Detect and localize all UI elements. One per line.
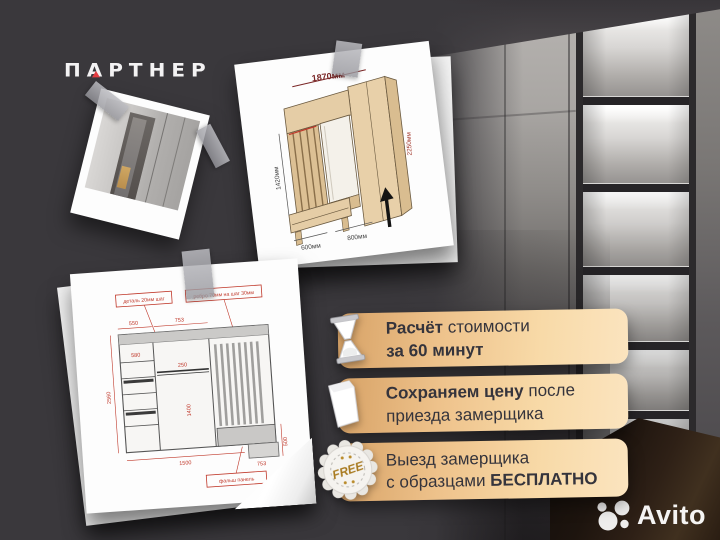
offer-line1: после	[524, 380, 576, 400]
offer-line1-bold: Сохраняем цену	[386, 381, 524, 402]
polaroid-photo	[70, 88, 210, 239]
offer-line1: стоимости	[443, 316, 530, 337]
offer-banner-price-lock: Сохраняем цену после приезда замерщика	[338, 373, 629, 433]
offer-line1-bold: Расчёт	[386, 318, 444, 338]
offer-banner-estimate: Расчёт стоимости за 60 минут	[338, 308, 629, 368]
dim-label: 2560	[106, 391, 113, 404]
logo-red-triangle-icon	[92, 71, 100, 77]
shelf-divider	[583, 96, 689, 105]
dim-label: 2250мм	[405, 131, 413, 155]
offer-line2: приезда замерщика	[386, 403, 544, 425]
logo-letter: П	[64, 59, 87, 81]
offer-line2: с образцами	[386, 471, 490, 492]
tape	[332, 40, 362, 77]
dim-label: 600мм	[301, 242, 322, 251]
offer-banner-free-visit: FREE Выезд замерщика с образцами БЕСПЛАТ…	[338, 438, 629, 501]
logo-letter: Н	[149, 59, 172, 81]
ad-creative: Avito ПАРТНЕР 1870мм	[0, 0, 720, 540]
dim-label: 1400	[186, 404, 193, 417]
tape	[182, 249, 215, 300]
logo-letter: Р	[108, 59, 129, 81]
avito-logo	[596, 497, 632, 533]
dim-label: 753	[175, 317, 185, 324]
offer-text: Выезд замерщика с образцами БЕСПЛАТНО	[386, 446, 598, 495]
offer-line1: Выезд замерщика	[386, 448, 530, 469]
offer-text: Сохраняем цену после приезда замерщика	[386, 379, 576, 427]
hourglass-icon	[326, 312, 370, 370]
free-badge-icon: FREE	[314, 436, 381, 508]
offer-text: Расчёт стоимости за 60 минут	[386, 315, 531, 362]
offer-line2-bold: за 60 минут	[386, 339, 484, 360]
logo-letter-a: А	[87, 59, 108, 81]
logo-letter: Е	[171, 59, 191, 81]
hallway-interior-photo	[85, 98, 200, 210]
logo-letter: Р	[191, 59, 212, 81]
lit-shelf-compartment	[583, 105, 689, 183]
avito-watermark: Avito	[596, 497, 706, 533]
panel-seam	[162, 117, 185, 207]
dim-label: 1420мм	[273, 166, 283, 191]
logo-letter: Т	[129, 59, 149, 81]
partner-logo: ПАРТНЕР	[64, 59, 212, 81]
dim-label: 1500	[179, 460, 192, 467]
dim-label: 500	[283, 437, 290, 447]
dim-label: 800мм	[347, 233, 368, 242]
shelf-divider	[583, 183, 689, 192]
dim-label: 550	[129, 321, 139, 328]
red-note-label: фальш панель	[219, 476, 255, 484]
dim-label: 580	[131, 353, 141, 360]
dim-label: 250	[178, 362, 188, 369]
offer-line2-bold: БЕСПЛАТНО	[490, 469, 598, 490]
avito-wordmark: Avito	[637, 500, 706, 531]
dim-label: 753	[257, 461, 267, 468]
document-icon	[322, 378, 366, 434]
